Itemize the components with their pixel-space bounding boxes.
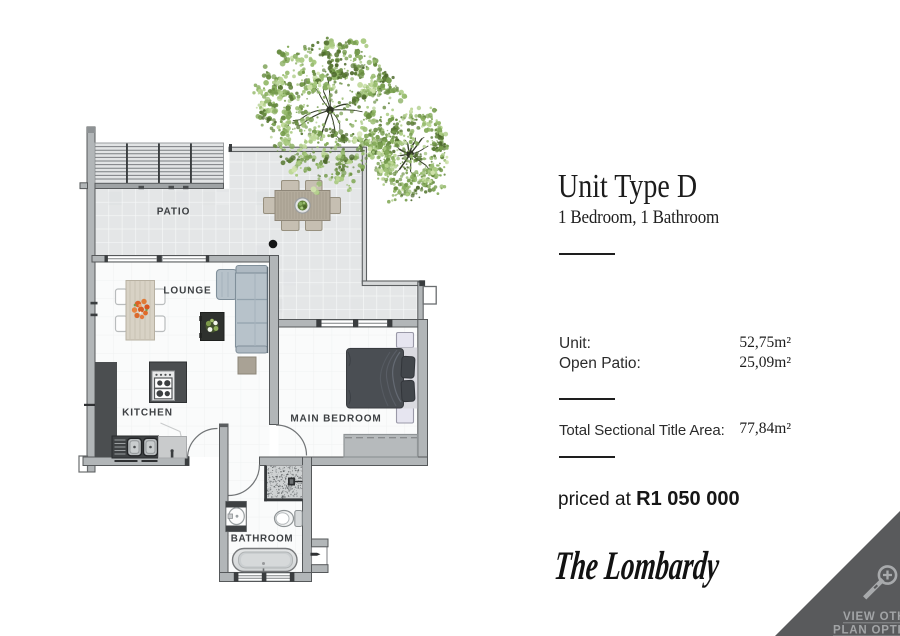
svg-text:PLAN OPTIONS: PLAN OPTIONS [833,625,900,636]
svg-text:BATHROOM: BATHROOM [231,534,294,545]
svg-text:PATIO: PATIO [157,207,191,218]
svg-text:VIEW OTHER: VIEW OTHER [843,611,900,623]
svg-text:LOUNGE: LOUNGE [163,286,211,297]
svg-text:MAIN BEDROOM: MAIN BEDROOM [290,414,381,425]
svg-text:KITCHEN: KITCHEN [122,408,173,419]
